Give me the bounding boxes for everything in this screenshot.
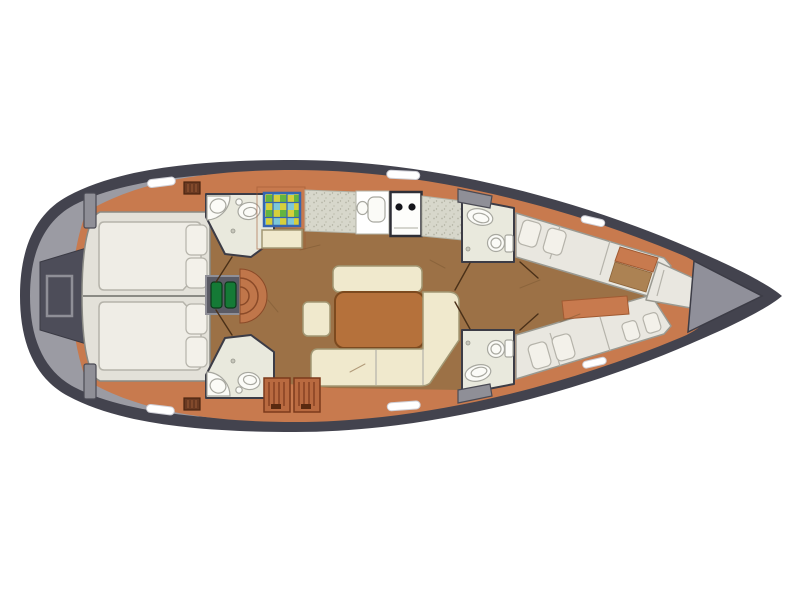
salon-table: [335, 292, 424, 348]
aft-cabin-twin-double-berths: [82, 212, 210, 381]
galley-counter-left: [305, 190, 356, 233]
stool-seat: [303, 302, 330, 336]
toilet-bowl: [488, 235, 505, 252]
toilet-flush: [236, 387, 242, 393]
companionway-step-tread: [225, 282, 236, 308]
deck-hatch: [387, 401, 420, 411]
galley-sink-basin: [368, 197, 385, 222]
companionway-step-tread: [211, 282, 222, 308]
pillow: [186, 337, 207, 367]
galley-sink-round-basin: [357, 202, 368, 215]
shower-drain: [231, 359, 235, 363]
stove-two-burner: [391, 192, 422, 236]
vent-grate: [184, 398, 200, 410]
locker-handle: [271, 404, 281, 409]
winch-pad: [84, 193, 96, 228]
companionway-stairs: [206, 269, 267, 323]
toilet-tank: [505, 340, 513, 357]
pillow: [186, 304, 207, 334]
shower-drain: [466, 341, 470, 345]
vent-grate: [184, 182, 200, 194]
winch-pad: [84, 364, 96, 399]
stove-burner: [395, 203, 402, 210]
galley-counter-right: [422, 196, 462, 240]
deck-hatch: [387, 170, 420, 180]
stove-burner: [408, 203, 415, 210]
toilet-tank: [505, 235, 513, 252]
pillow: [186, 225, 207, 255]
galley-shelf: [262, 230, 302, 248]
locker-handle: [301, 404, 311, 409]
toilet-flush: [236, 199, 242, 205]
settee-bench: [333, 266, 422, 292]
shower-drain: [231, 229, 235, 233]
colored-grid-hatch: [264, 193, 300, 226]
shower-drain: [466, 247, 470, 251]
pillow: [186, 258, 207, 288]
toilet-bowl: [488, 341, 505, 358]
yacht-floor-plan-canvas: [0, 0, 800, 600]
yacht-floor-plan: [0, 0, 800, 600]
